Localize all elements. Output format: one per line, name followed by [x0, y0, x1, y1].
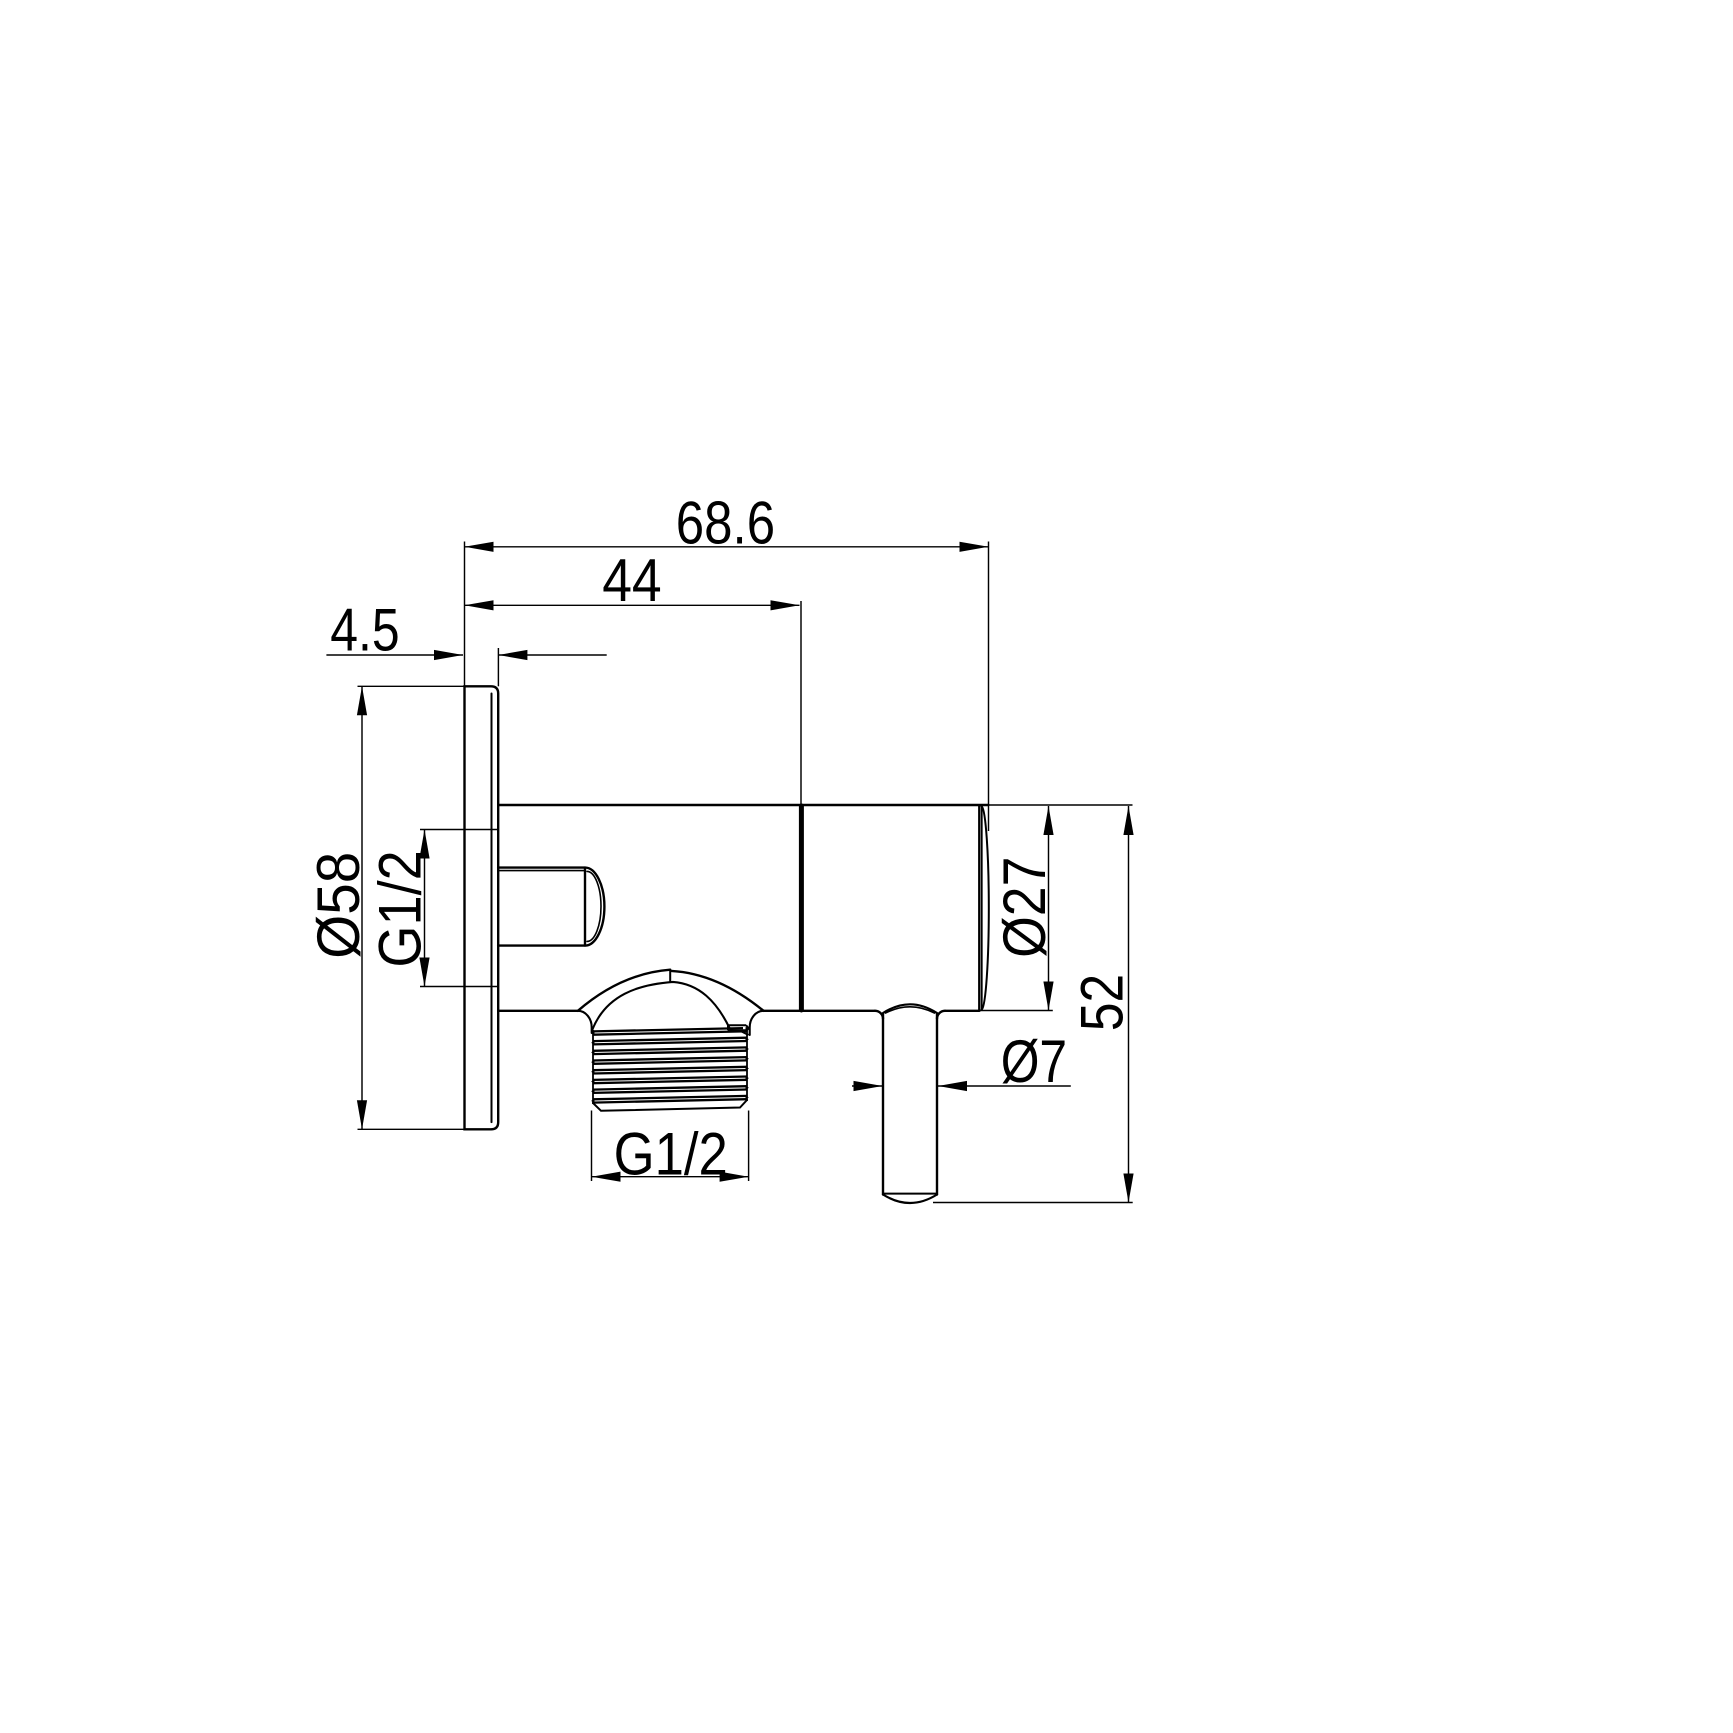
svg-text:Ø58: Ø58 [305, 852, 372, 959]
svg-text:44: 44 [602, 547, 662, 614]
svg-text:68.6: 68.6 [676, 490, 775, 557]
svg-text:4.5: 4.5 [330, 597, 399, 664]
svg-text:Ø27: Ø27 [991, 857, 1058, 958]
svg-text:G1/2: G1/2 [367, 850, 434, 967]
svg-text:52: 52 [1069, 974, 1136, 1031]
svg-text:Ø7: Ø7 [1001, 1028, 1067, 1095]
svg-text:G1/2: G1/2 [614, 1121, 728, 1188]
